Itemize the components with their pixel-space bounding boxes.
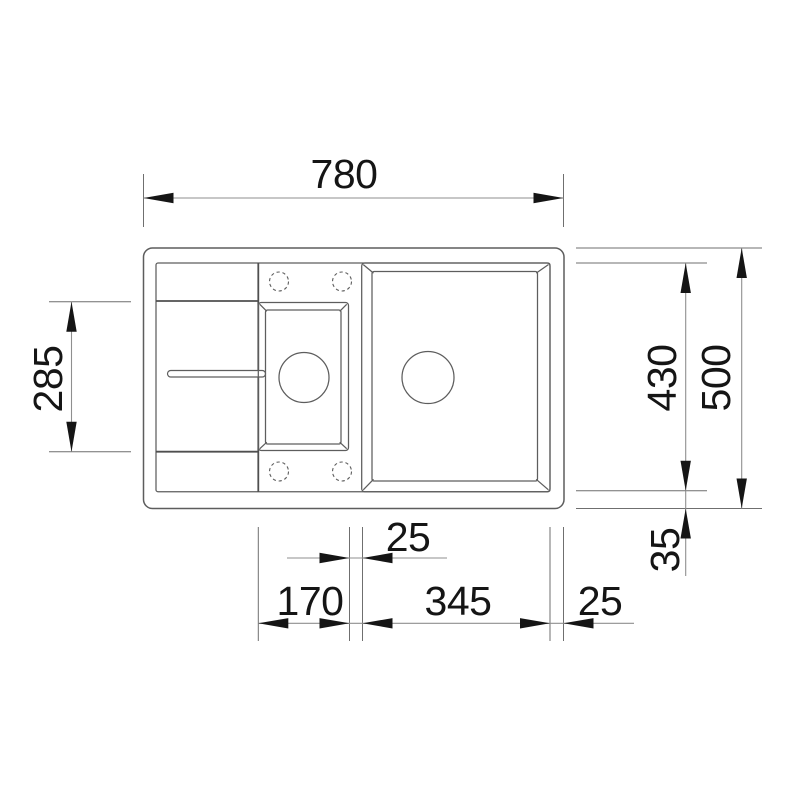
dimension-arrow <box>681 263 691 293</box>
dimension-arrow <box>66 422 76 452</box>
dimension-chained-widths: 170 345 25 <box>258 578 634 629</box>
dimension-arrow <box>144 193 174 203</box>
dimension-label-right-rim: 25 <box>578 578 623 624</box>
dimension-label-bottom-rim: 35 <box>642 528 688 573</box>
dimension-label-bowl-depth: 430 <box>639 345 685 412</box>
sink-outer-edge <box>144 248 565 509</box>
dimension-label-overall-width: 780 <box>311 151 378 197</box>
dimension-arrow <box>737 479 747 509</box>
dimension-arrow <box>681 461 691 491</box>
sink-dimension-drawing: 780 285 430 500 <box>0 0 800 800</box>
dimension-arrow <box>737 248 747 278</box>
dimension-overall-width: 780 <box>144 151 564 227</box>
drainer-groove <box>168 371 266 378</box>
dimension-arrow <box>66 302 76 332</box>
dimension-arrow <box>534 193 564 203</box>
dimension-label-main-bowl-width: 345 <box>425 578 492 624</box>
dimension-arrow <box>520 618 550 628</box>
dimension-drainer-depth: 285 <box>25 302 131 452</box>
dimension-arrow <box>320 553 350 563</box>
dimension-bottom-rim: 35 <box>642 491 691 576</box>
dimension-label-overall-depth: 500 <box>693 345 739 412</box>
sink-body <box>144 248 565 509</box>
technical-drawing-canvas: 780 285 430 500 <box>0 0 800 800</box>
dimension-label-bowl-gap: 25 <box>386 514 431 560</box>
dimension-label-small-bowl-width: 170 <box>277 578 344 624</box>
dimension-label-drainer-depth: 285 <box>25 346 71 413</box>
dimension-bottom-group: 25 170 345 25 <box>258 514 634 641</box>
dimension-bowl-gap: 25 <box>287 514 447 563</box>
dimension-bowl-depth: 430 <box>576 263 707 491</box>
dimension-arrow <box>363 618 393 628</box>
